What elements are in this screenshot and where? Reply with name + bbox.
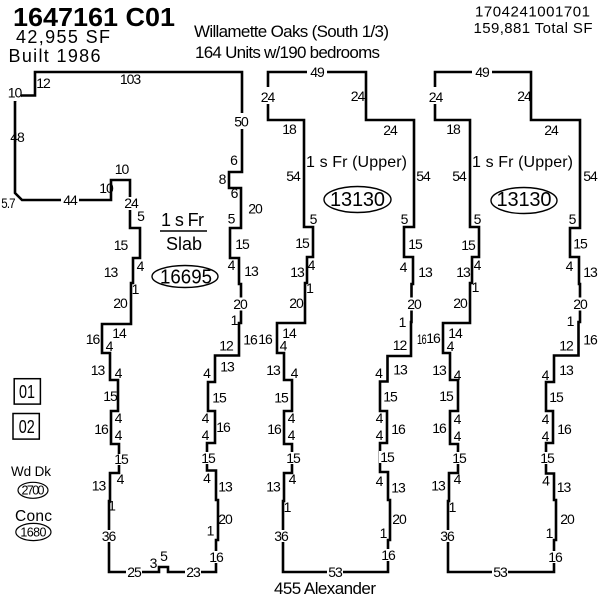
svg-text:16: 16 xyxy=(557,421,572,437)
svg-text:16: 16 xyxy=(86,331,101,347)
svg-text:15: 15 xyxy=(212,390,227,406)
svg-text:5: 5 xyxy=(474,211,482,227)
svg-text:4: 4 xyxy=(542,473,550,489)
svg-text:5: 5 xyxy=(137,208,145,224)
svg-text:1 s Fr: 1 s Fr xyxy=(161,210,204,230)
svg-text:13: 13 xyxy=(559,362,574,378)
svg-text:15: 15 xyxy=(295,235,310,251)
svg-text:4: 4 xyxy=(308,257,316,273)
svg-text:24: 24 xyxy=(517,88,532,104)
svg-text:16: 16 xyxy=(216,419,231,435)
svg-text:4: 4 xyxy=(228,257,236,273)
svg-text:36: 36 xyxy=(440,528,455,544)
svg-text:48: 48 xyxy=(10,129,25,145)
svg-text:20: 20 xyxy=(218,511,233,527)
svg-text:16: 16 xyxy=(381,547,396,563)
svg-text:Built 1986: Built 1986 xyxy=(9,46,101,66)
svg-text:15: 15 xyxy=(380,449,395,465)
svg-text:4: 4 xyxy=(203,470,211,486)
svg-text:4: 4 xyxy=(454,428,462,444)
svg-text:13: 13 xyxy=(583,264,598,280)
svg-text:15: 15 xyxy=(439,388,454,404)
svg-text:54: 54 xyxy=(416,168,431,184)
svg-text:1 s Fr (Upper): 1 s Fr (Upper) xyxy=(472,154,573,171)
svg-text:13130: 13130 xyxy=(497,189,552,211)
svg-text:4: 4 xyxy=(376,410,384,426)
svg-text:13: 13 xyxy=(244,263,259,279)
svg-text:1: 1 xyxy=(207,523,215,539)
svg-text:13: 13 xyxy=(266,479,281,495)
svg-text:24: 24 xyxy=(351,88,366,104)
svg-text:4: 4 xyxy=(375,365,383,381)
svg-text:25: 25 xyxy=(127,564,142,580)
svg-text:10: 10 xyxy=(115,161,130,177)
svg-text:1: 1 xyxy=(546,525,554,541)
svg-text:Wd Dk: Wd Dk xyxy=(11,464,51,479)
svg-text:Slab: Slab xyxy=(166,234,202,254)
svg-text:15: 15 xyxy=(452,450,467,466)
svg-text:1: 1 xyxy=(132,281,140,297)
svg-text:1: 1 xyxy=(380,525,388,541)
svg-text:16: 16 xyxy=(267,421,282,437)
svg-text:20: 20 xyxy=(233,296,248,312)
svg-text:18: 18 xyxy=(446,121,461,137)
svg-text:4: 4 xyxy=(288,410,296,426)
svg-text:16: 16 xyxy=(583,332,598,348)
svg-text:15: 15 xyxy=(274,390,289,406)
svg-text:20: 20 xyxy=(113,295,128,311)
svg-text:4: 4 xyxy=(542,367,550,383)
svg-text:12: 12 xyxy=(393,337,408,353)
svg-text:15: 15 xyxy=(573,236,588,252)
svg-text:20: 20 xyxy=(453,295,468,311)
svg-text:12: 12 xyxy=(219,338,234,354)
svg-text:5: 5 xyxy=(228,211,236,227)
svg-text:13: 13 xyxy=(104,264,119,280)
svg-text:23: 23 xyxy=(186,564,201,580)
svg-text:24: 24 xyxy=(383,122,398,138)
svg-text:13: 13 xyxy=(290,264,305,280)
svg-text:18: 18 xyxy=(282,121,297,137)
svg-text:6: 6 xyxy=(230,152,238,168)
svg-text:01: 01 xyxy=(19,382,35,402)
svg-text:13: 13 xyxy=(218,479,233,495)
svg-text:20: 20 xyxy=(407,296,422,312)
svg-text:13: 13 xyxy=(391,480,406,496)
svg-text:24: 24 xyxy=(429,89,444,105)
svg-text:4: 4 xyxy=(288,427,296,443)
svg-text:12: 12 xyxy=(559,338,574,354)
svg-text:Conc: Conc xyxy=(15,508,52,525)
svg-text:54: 54 xyxy=(583,168,598,184)
svg-text:36: 36 xyxy=(274,528,289,544)
svg-text:13: 13 xyxy=(92,478,107,494)
svg-text:15: 15 xyxy=(408,236,423,252)
svg-text:16: 16 xyxy=(209,549,224,565)
svg-text:4: 4 xyxy=(106,338,114,354)
svg-text:4: 4 xyxy=(291,365,299,381)
svg-text:1: 1 xyxy=(306,280,314,296)
svg-text:13130: 13130 xyxy=(330,189,385,211)
svg-text:4: 4 xyxy=(447,338,455,354)
svg-text:13: 13 xyxy=(557,479,572,495)
svg-text:13: 13 xyxy=(220,359,235,375)
svg-text:4: 4 xyxy=(376,473,384,489)
svg-text:16695: 16695 xyxy=(160,267,212,289)
svg-text:13: 13 xyxy=(431,478,446,494)
svg-text:1704241001701: 1704241001701 xyxy=(475,4,590,21)
svg-text:15: 15 xyxy=(201,450,216,466)
svg-text:3: 3 xyxy=(150,555,158,571)
svg-text:4: 4 xyxy=(280,338,288,354)
svg-text:15: 15 xyxy=(461,237,476,253)
svg-text:Willamette Oaks (South 1/3): Willamette Oaks (South 1/3) xyxy=(194,22,389,41)
svg-text:15: 15 xyxy=(114,451,129,467)
svg-text:36: 36 xyxy=(102,528,117,544)
svg-text:16: 16 xyxy=(94,421,109,437)
svg-text:4: 4 xyxy=(454,411,462,427)
svg-text:10: 10 xyxy=(99,180,114,196)
svg-text:15: 15 xyxy=(540,450,555,466)
svg-text:20: 20 xyxy=(248,201,263,217)
svg-text:1: 1 xyxy=(567,313,575,329)
svg-text:20: 20 xyxy=(392,511,407,527)
svg-text:5: 5 xyxy=(569,211,577,227)
svg-text:1: 1 xyxy=(108,498,116,514)
svg-text:4: 4 xyxy=(115,410,123,426)
svg-text:49: 49 xyxy=(475,64,490,80)
svg-text:4: 4 xyxy=(474,257,482,273)
svg-text:49: 49 xyxy=(310,64,325,80)
svg-text:4: 4 xyxy=(400,259,408,275)
svg-text:02: 02 xyxy=(19,417,35,437)
svg-text:2700: 2700 xyxy=(22,484,45,498)
svg-text:16: 16 xyxy=(432,420,447,436)
svg-text:1680: 1680 xyxy=(20,526,46,540)
svg-text:13: 13 xyxy=(432,362,447,378)
svg-text:15: 15 xyxy=(286,450,301,466)
svg-text:4: 4 xyxy=(566,258,574,274)
svg-text:53: 53 xyxy=(328,564,343,580)
svg-text:1 s Fr (Upper): 1 s Fr (Upper) xyxy=(306,154,407,171)
svg-text:5: 5 xyxy=(310,211,318,227)
svg-text:16: 16 xyxy=(258,331,273,347)
svg-text:1: 1 xyxy=(284,499,292,515)
svg-text:1: 1 xyxy=(399,314,407,330)
svg-text:6: 6 xyxy=(231,185,239,201)
svg-text:4: 4 xyxy=(454,367,462,383)
svg-text:15: 15 xyxy=(103,388,118,404)
svg-text:4: 4 xyxy=(202,410,210,426)
svg-text:5: 5 xyxy=(160,548,168,564)
svg-text:16: 16 xyxy=(391,421,406,437)
svg-text:4: 4 xyxy=(115,365,123,381)
svg-text:4: 4 xyxy=(137,258,145,274)
svg-text:24: 24 xyxy=(261,89,276,105)
svg-text:20: 20 xyxy=(573,296,588,312)
svg-text:159,881 Total SF: 159,881 Total SF xyxy=(474,20,593,37)
svg-text:4: 4 xyxy=(542,428,550,444)
svg-text:20: 20 xyxy=(560,511,575,527)
svg-text:14: 14 xyxy=(112,325,127,341)
svg-text:15: 15 xyxy=(114,237,129,253)
svg-text:24: 24 xyxy=(544,122,559,138)
svg-text:455 Alexander: 455 Alexander xyxy=(274,579,376,598)
svg-text:13: 13 xyxy=(266,362,281,378)
svg-text:10: 10 xyxy=(8,85,23,101)
svg-text:4: 4 xyxy=(203,365,211,381)
svg-text:16: 16 xyxy=(243,332,258,348)
svg-text:15: 15 xyxy=(383,389,398,405)
svg-text:8: 8 xyxy=(219,171,227,187)
svg-text:42,955 SF: 42,955 SF xyxy=(16,27,110,47)
svg-text:5.7: 5.7 xyxy=(1,195,15,211)
svg-text:13: 13 xyxy=(91,362,106,378)
svg-text:54: 54 xyxy=(286,168,301,184)
svg-text:53: 53 xyxy=(493,564,508,580)
svg-text:4: 4 xyxy=(542,411,550,427)
svg-text:4: 4 xyxy=(115,427,123,443)
svg-text:4: 4 xyxy=(376,427,384,443)
svg-text:1: 1 xyxy=(231,312,239,328)
svg-text:44: 44 xyxy=(63,192,78,208)
svg-text:4: 4 xyxy=(454,471,462,487)
svg-text:4: 4 xyxy=(117,471,125,487)
svg-text:50: 50 xyxy=(234,114,249,130)
svg-text:54: 54 xyxy=(452,168,467,184)
svg-text:16: 16 xyxy=(426,330,441,346)
svg-text:20: 20 xyxy=(289,295,304,311)
svg-text:16: 16 xyxy=(548,549,563,565)
svg-text:13: 13 xyxy=(456,264,471,280)
svg-text:12: 12 xyxy=(36,75,51,91)
svg-text:13: 13 xyxy=(418,264,433,280)
svg-text:15: 15 xyxy=(549,389,564,405)
svg-text:5: 5 xyxy=(401,211,409,227)
svg-text:4: 4 xyxy=(289,471,297,487)
svg-text:13: 13 xyxy=(393,362,408,378)
svg-text:4: 4 xyxy=(202,427,210,443)
svg-text:103: 103 xyxy=(120,71,142,87)
svg-text:15: 15 xyxy=(235,236,250,252)
svg-text:1: 1 xyxy=(449,499,457,515)
svg-text:1: 1 xyxy=(472,279,480,295)
svg-text:164 Units w/190 bedrooms: 164 Units w/190 bedrooms xyxy=(195,43,380,62)
